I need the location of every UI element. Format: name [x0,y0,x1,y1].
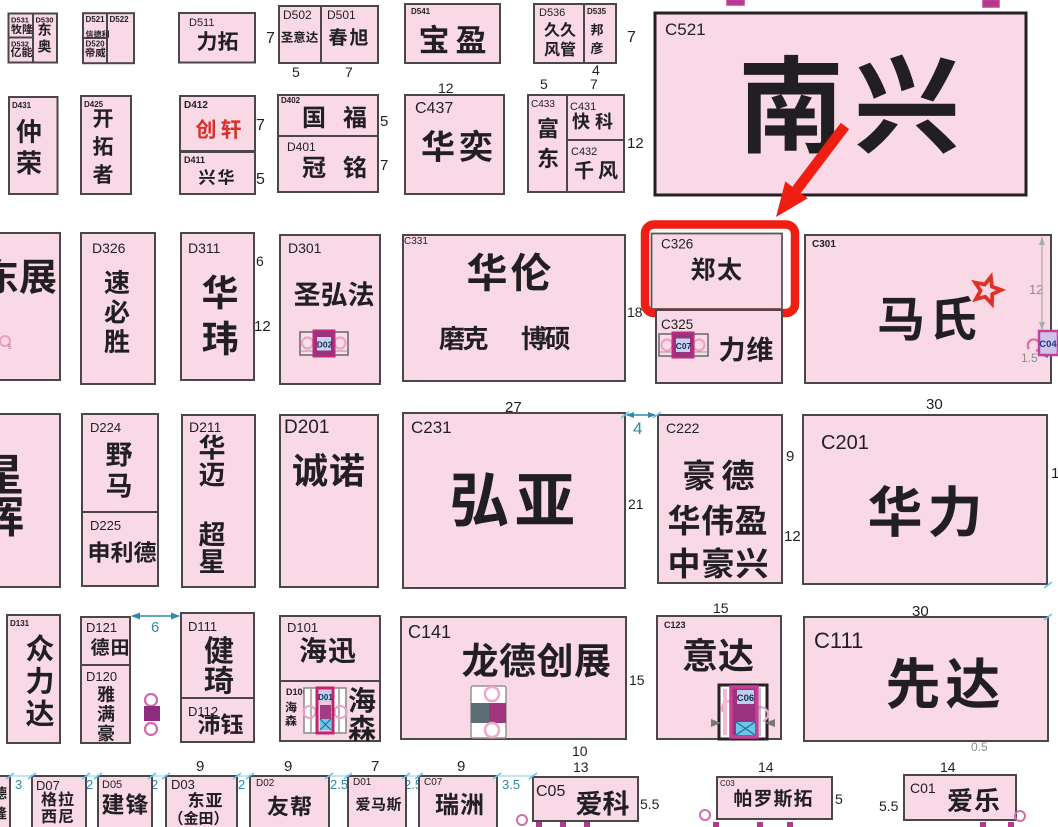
svg-text:C432: C432 [571,146,597,158]
svg-text:D431: D431 [12,101,32,110]
svg-text:D521: D521 [86,15,106,24]
svg-text:D502: D502 [283,8,312,22]
svg-text:12: 12 [627,135,644,152]
svg-text:D224: D224 [90,420,121,435]
svg-text:9: 9 [457,758,465,775]
svg-text:D412: D412 [184,100,208,111]
svg-text:D02: D02 [256,778,275,789]
svg-text:12: 12 [1029,282,1043,297]
svg-text:6: 6 [151,619,159,636]
svg-text:D111: D111 [188,619,217,634]
svg-text:3: 3 [15,777,22,792]
svg-text:10: 10 [572,743,588,759]
svg-text:21: 21 [628,496,644,512]
svg-text:D131: D131 [10,619,30,628]
svg-text:D536: D536 [539,7,565,19]
svg-text:15: 15 [629,672,645,688]
svg-text:C431: C431 [570,101,596,113]
svg-text:12: 12 [784,528,801,545]
svg-text:D01: D01 [353,777,372,788]
svg-text:C123: C123 [664,620,686,630]
svg-text:12: 12 [438,80,454,96]
svg-text:7: 7 [371,758,379,775]
svg-text:D411: D411 [184,155,205,165]
svg-text:1.5: 1.5 [1021,351,1038,365]
svg-text:D501: D501 [327,8,356,22]
svg-text:D311: D311 [188,240,221,256]
svg-text:D225: D225 [90,518,121,533]
svg-text:C433: C433 [531,99,555,110]
svg-text:0.5: 0.5 [971,740,988,754]
svg-text:30: 30 [926,396,943,413]
svg-text:D01: D01 [318,693,333,702]
svg-text:C521: C521 [665,20,706,39]
svg-text:D520: D520 [86,40,106,49]
svg-text:2.5: 2.5 [330,777,348,792]
svg-text:D541: D541 [411,7,431,16]
svg-text:13: 13 [573,759,589,775]
svg-text:D120: D120 [86,669,117,684]
svg-text:6: 6 [256,253,264,269]
svg-text:7: 7 [256,117,265,134]
svg-text:C325: C325 [661,317,693,332]
svg-text:5.5: 5.5 [640,796,660,812]
svg-text:D301: D301 [288,240,322,256]
svg-text:7: 7 [345,64,353,80]
svg-text:7: 7 [590,76,598,92]
svg-text:7: 7 [380,157,388,174]
svg-text:C03: C03 [720,779,735,788]
svg-text:C331: C331 [404,236,428,247]
svg-text:5: 5 [292,64,300,80]
svg-text:D02: D02 [317,340,333,350]
svg-text:C222: C222 [666,420,700,436]
svg-text:9: 9 [196,758,204,775]
svg-text:D531: D531 [11,16,29,25]
svg-text:D511: D511 [189,17,214,29]
svg-text:D211: D211 [189,419,222,435]
svg-text:5: 5 [256,171,265,188]
svg-text:C326: C326 [661,237,693,252]
svg-text:D425: D425 [84,100,104,109]
svg-text:3.5: 3.5 [502,777,520,792]
svg-text:C201: C201 [821,432,869,454]
svg-text:C231: C231 [411,418,452,437]
svg-text:14: 14 [940,759,956,775]
svg-text:5: 5 [835,791,843,807]
svg-text:9: 9 [786,448,794,465]
svg-text:D07: D07 [36,778,60,793]
svg-text:C01: C01 [910,780,936,796]
svg-text:5: 5 [380,113,388,130]
svg-text:D402: D402 [281,96,301,105]
svg-text:D530: D530 [36,16,54,25]
svg-text:D101: D101 [287,620,318,635]
svg-text:D326: D326 [92,240,126,256]
svg-text:D05: D05 [102,779,122,791]
svg-text:D401: D401 [287,140,316,154]
svg-text:C04: C04 [1039,339,1057,350]
svg-text:D522: D522 [110,15,130,24]
svg-text:C301: C301 [812,239,836,250]
svg-text:18: 18 [627,304,643,320]
svg-text:9: 9 [284,758,292,775]
svg-text:C437: C437 [415,100,453,117]
svg-text:7: 7 [266,30,275,47]
svg-text:5.5: 5.5 [879,798,899,814]
svg-text:C06: C06 [737,693,754,704]
svg-text:D535: D535 [587,7,607,16]
svg-text:D201: D201 [284,417,329,438]
svg-text:14: 14 [758,759,774,775]
svg-text:2: 2 [86,777,93,792]
svg-text:D03: D03 [171,777,195,792]
svg-text:C141: C141 [408,622,451,642]
svg-text:4: 4 [633,419,642,438]
svg-text:7: 7 [627,29,636,46]
svg-text:C07: C07 [676,341,692,351]
svg-text:2: 2 [238,777,245,792]
svg-text:12: 12 [254,318,271,335]
svg-text:15: 15 [713,600,729,616]
svg-text:C111: C111 [814,628,863,653]
svg-text:15: 15 [1051,465,1058,482]
svg-text:5: 5 [540,76,548,92]
svg-text:C07: C07 [424,777,443,788]
svg-text:D121: D121 [86,620,117,635]
svg-text:C05: C05 [536,783,565,800]
